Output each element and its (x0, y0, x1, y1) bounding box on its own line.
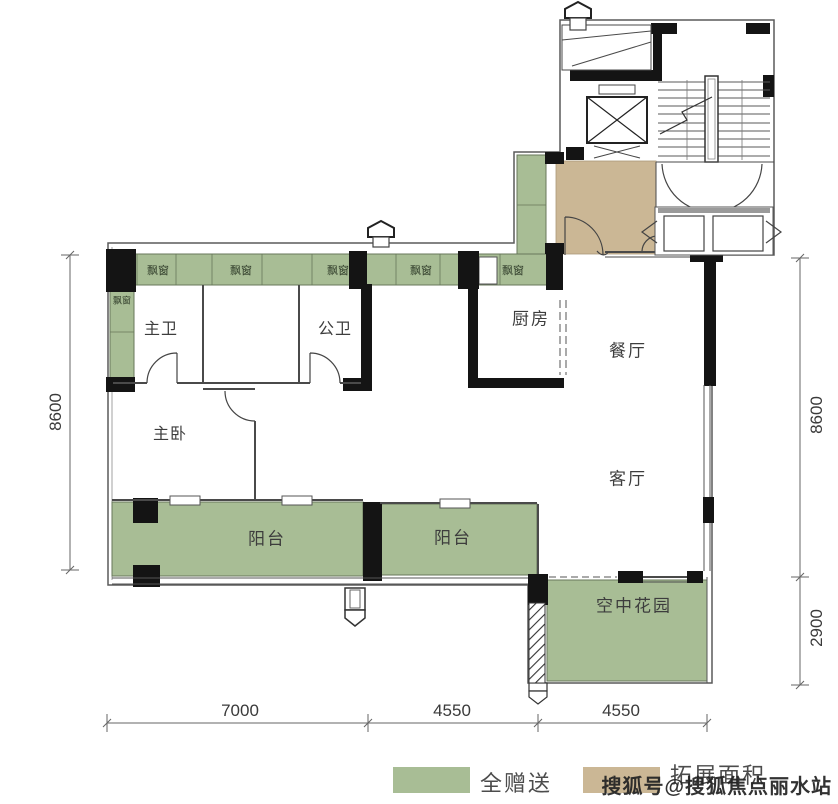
bay-window-label: 飘窗 (410, 262, 432, 278)
bay-window-label: 飘窗 (502, 262, 524, 278)
room-label-living: 客厅 (609, 465, 647, 490)
dim-bottom-4550-mid: 4550 (433, 701, 471, 721)
bay-window-label: 飘窗 (327, 262, 349, 278)
bay-window-label: 飘窗 (230, 262, 252, 278)
bay-strip-kitchen (517, 155, 546, 254)
room-label-balcony-2: 阳台 (434, 524, 472, 549)
room-label-balcony-1: 阳台 (248, 525, 286, 550)
room-label-kitchen: 厨房 (512, 305, 550, 330)
stair-rail (705, 76, 718, 162)
legend-label-gift: 全赠送 (480, 766, 552, 798)
dim-bottom-4550-right: 4550 (602, 701, 640, 721)
hatched-wall (529, 603, 545, 683)
lower-shaft-annex (642, 207, 781, 255)
watermark: 搜狐号@搜狐焦点丽水站 (601, 770, 832, 799)
dim-left-8600: 8600 (46, 393, 66, 431)
room-label-sky-garden: 空中花园 (596, 592, 672, 617)
bay-window-label: 飘窗 (113, 294, 131, 307)
drain-pipes (345, 588, 547, 704)
room-label-master-bath: 主卫 (144, 315, 178, 339)
legend-swatch-gift (393, 767, 470, 793)
expansion-area (556, 161, 656, 254)
flue-icon (368, 221, 394, 237)
flue-icon (565, 2, 591, 18)
dim-bottom-7000: 7000 (221, 701, 259, 721)
dim-right-8600: 8600 (807, 396, 827, 434)
band-window-box (479, 257, 497, 284)
room-label-master-bedroom: 主卧 (153, 420, 187, 444)
bay-window-label: 飘窗 (147, 262, 169, 278)
dim-right-2900: 2900 (807, 609, 827, 647)
room-label-public-bath: 公卫 (318, 315, 352, 339)
room-label-dining: 餐厅 (609, 337, 647, 362)
floor-plan-canvas: 主卫 公卫 厨房 餐厅 客厅 主卧 阳台 阳台 空中花园 飘窗 飘窗 飘窗 飘窗… (0, 0, 838, 804)
floor-plan-drawing (0, 0, 838, 804)
